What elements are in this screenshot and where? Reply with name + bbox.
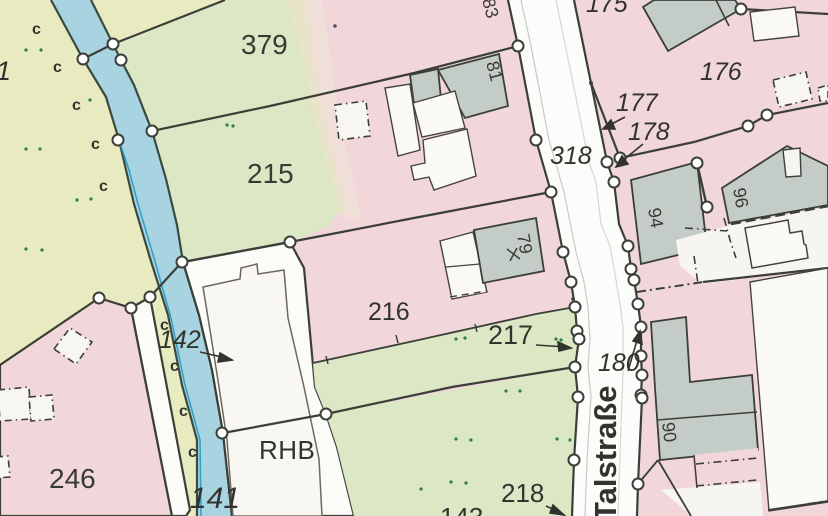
- svg-text:c: c: [32, 21, 41, 38]
- svg-text:RHB: RHB: [259, 435, 315, 465]
- svg-text:217: 217: [488, 320, 533, 350]
- svg-text:c: c: [188, 444, 197, 461]
- svg-text:79: 79: [513, 232, 536, 255]
- svg-text:176: 176: [700, 58, 742, 86]
- svg-text:96: 96: [729, 186, 752, 209]
- svg-text:c: c: [91, 136, 100, 153]
- svg-text:c: c: [53, 59, 62, 76]
- svg-text:177: 177: [616, 89, 659, 117]
- svg-text:c: c: [99, 178, 108, 195]
- svg-text:142: 142: [159, 326, 201, 354]
- svg-text:94: 94: [644, 206, 667, 229]
- svg-text:218: 218: [501, 478, 544, 508]
- svg-text:c: c: [72, 97, 81, 114]
- svg-text:143: 143: [440, 502, 483, 516]
- svg-text:318: 318: [550, 142, 592, 170]
- svg-text:Talstraße: Talstraße: [588, 385, 623, 516]
- svg-text:178: 178: [628, 118, 670, 146]
- svg-text:c: c: [170, 358, 179, 375]
- svg-text:175: 175: [586, 0, 628, 18]
- svg-text:141: 141: [190, 482, 240, 515]
- svg-text:1: 1: [0, 56, 11, 86]
- svg-text:c: c: [179, 403, 188, 420]
- svg-text:216: 216: [368, 298, 410, 326]
- svg-text:379: 379: [241, 29, 288, 60]
- svg-text:215: 215: [247, 158, 294, 189]
- svg-text:90: 90: [658, 421, 680, 443]
- svg-text:246: 246: [49, 463, 96, 494]
